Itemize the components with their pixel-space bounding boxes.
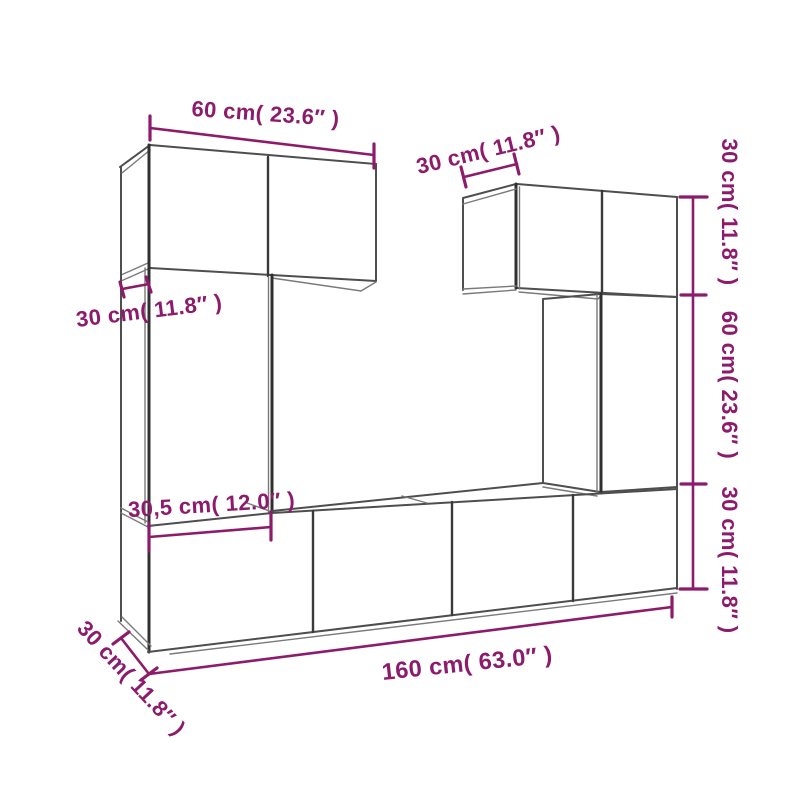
cabinet-top-right-panel-edges — [463, 187, 602, 299]
dimension-right-top-height-label: 30 cm( 11.8″ ) — [717, 139, 742, 286]
bottom-row-door-divisions — [313, 495, 573, 632]
dimension-total-width-label: 160 cm( 63.0″ ) — [381, 641, 554, 685]
cabinet-top-right — [463, 184, 677, 299]
dimension-top-width-line — [150, 128, 374, 155]
wall-cabinet-set-drawing: 60 cm( 23.6″ ) 30 cm( 11.8″ ) 30 cm( 11.… — [0, 0, 800, 800]
cabinet-tall-right-panel-edges — [543, 295, 597, 496]
dimension-lower-left-width-line — [149, 527, 271, 537]
cabinet-top-left-outline — [120, 145, 376, 281]
cabinet-tall-right-outline — [543, 294, 677, 492]
cabinet-top-left — [120, 145, 376, 291]
dimension-right-heights: 30 cm( 11.8″ ) 60 cm( 23.6″ ) 30 cm( 11.… — [680, 139, 742, 634]
cabinet-tall-left — [121, 145, 272, 652]
dimension-upper-right-depth: 30 cm( 11.8″ ) — [414, 120, 563, 187]
cabinet-top-right-outline — [463, 184, 677, 297]
cabinet-tall-right — [543, 294, 677, 496]
dimension-total-width: 160 cm( 63.0″ ) — [149, 597, 672, 685]
dimension-right-middle-height-label: 60 cm( 23.6″ ) — [717, 311, 742, 459]
dimension-top-width-label: 60 cm( 23.6″ ) — [191, 96, 341, 131]
furniture-dimension-diagram: 60 cm( 23.6″ ) 30 cm( 11.8″ ) 30 cm( 11.… — [0, 0, 800, 800]
dimension-right-bottom-height-label: 30 cm( 11.8″ ) — [717, 487, 742, 634]
cabinet-top-left-panel-edges — [121, 150, 376, 291]
dimension-top-width: 60 cm( 23.6″ ) — [150, 96, 374, 168]
